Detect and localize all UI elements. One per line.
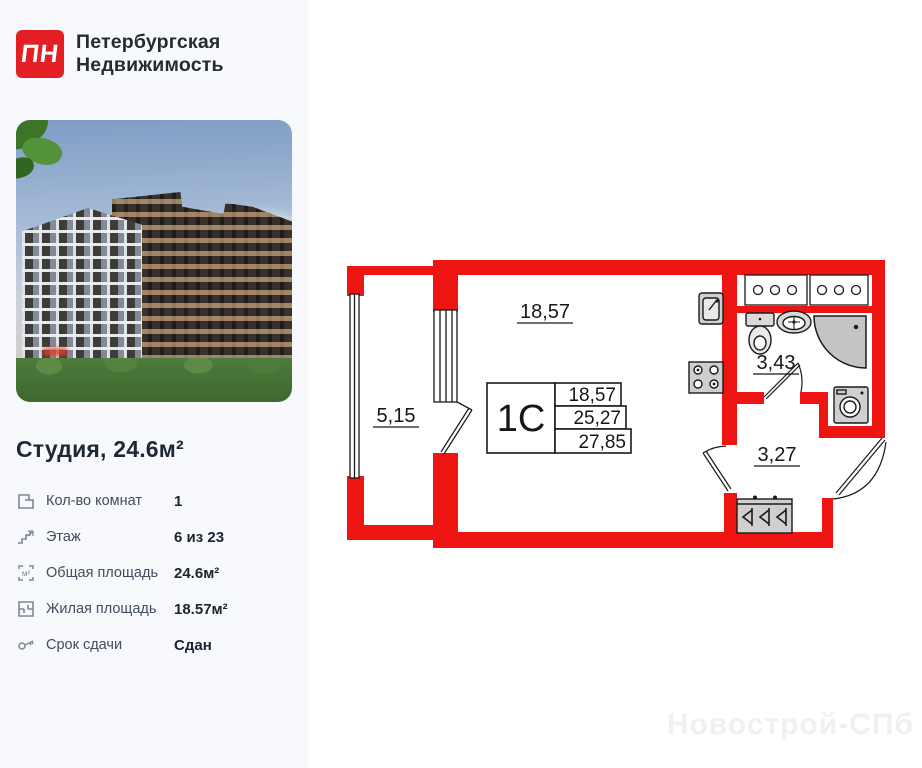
property-row-living-area: Жилая площадь 18.57м² [16, 598, 292, 620]
building-photo[interactable] [16, 120, 292, 402]
room-area-label-balcony: 5,15 [377, 405, 416, 427]
balcony-door [441, 408, 472, 454]
floor-icon [16, 527, 36, 547]
property-label: Этаж [46, 529, 174, 545]
unit-total-area-with-balcony: 27,85 [578, 432, 626, 453]
sidebar: ПН Петербургская Недвижимость Студия, 24… [0, 0, 308, 768]
toilet-symbol [746, 313, 774, 354]
building-main-light-face [22, 208, 142, 376]
property-value: 18.57м² [174, 601, 228, 618]
brand-name-line1: Петербургская [76, 31, 224, 54]
property-row-rooms: Кол-во комнат 1 [16, 490, 292, 512]
rooms-icon [16, 491, 36, 511]
unit-total-area: 25,27 [573, 408, 621, 429]
property-row-total-area: м² Общая площадь 24.6м² [16, 562, 292, 584]
page-title: Студия, 24.6м² [16, 436, 184, 463]
room-area-label-hallway: 3,27 [758, 444, 797, 466]
room-area-label-main: 18,57 [520, 301, 570, 323]
svg-text:м²: м² [22, 569, 31, 578]
bathroom-sink-symbol [777, 311, 811, 333]
property-value: 6 из 23 [174, 529, 224, 546]
room-area-label-bathroom: 3,43 [757, 352, 796, 374]
watermark: Новострой-СПб [667, 708, 914, 742]
foreground-leaves [16, 120, 88, 194]
property-value: Сдан [174, 637, 212, 654]
car-lights [42, 348, 68, 356]
balcony-room-window [434, 310, 472, 410]
property-label: Жилая площадь [46, 601, 174, 617]
property-row-floor: Этаж 6 из 23 [16, 526, 292, 548]
shower-symbol [814, 316, 866, 368]
property-label: Кол-во комнат [46, 493, 174, 509]
unit-living-area: 18,57 [568, 385, 616, 406]
unit-info-box: 1С 18,57 25,27 27,85 [487, 383, 631, 453]
property-value: 1 [174, 493, 182, 510]
entrance-door [833, 438, 886, 499]
brand-logo[interactable]: ПН Петербургская Недвижимость [16, 30, 224, 78]
listing-page: ПН Петербургская Недвижимость Студия, 24… [0, 0, 922, 768]
property-value: 24.6м² [174, 565, 219, 582]
brand-name: Петербургская Недвижимость [76, 31, 224, 77]
stove-symbol [689, 362, 723, 393]
property-label: Срок сдачи [46, 637, 174, 653]
logo-icon: ПН [16, 30, 64, 78]
unit-type-label: 1С [497, 398, 546, 440]
balcony-window [350, 294, 359, 478]
washing-machine-symbol [834, 387, 868, 423]
kitchen-sink-symbol [699, 293, 723, 324]
property-row-deadline: Срок сдачи Сдан [16, 634, 292, 656]
living-area-icon [16, 599, 36, 619]
total-area-icon: м² [16, 563, 36, 583]
brand-name-line2: Недвижимость [76, 54, 224, 77]
floor-plan: 18,57 5,15 3,43 3,27 1С 18,57 25,27 27,8… [345, 256, 910, 548]
logo-text: ПН [19, 40, 61, 69]
key-icon [16, 635, 36, 655]
property-details: Кол-во комнат 1 Этаж 6 из 23 м² Общая пл… [16, 490, 292, 670]
hedge [16, 358, 292, 402]
cabinet-symbols [745, 275, 868, 305]
main-room-door [703, 446, 731, 491]
wardrobe-symbol [737, 496, 792, 534]
property-label: Общая площадь [46, 565, 174, 581]
